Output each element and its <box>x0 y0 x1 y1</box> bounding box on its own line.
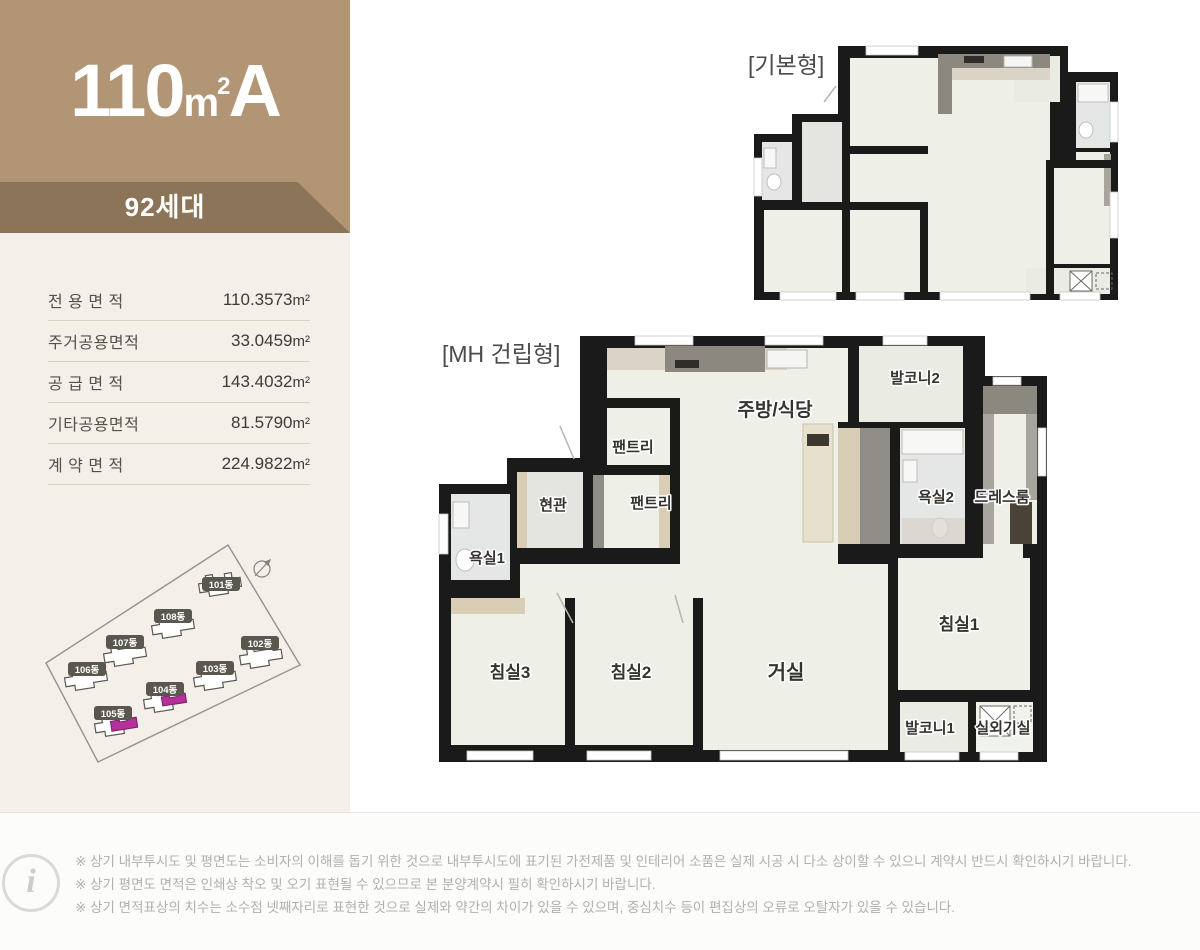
unit-type-letter: A <box>228 49 279 132</box>
disclaimer-notes: ※ 상기 내부투시도 및 평면도는 소비자의 이해를 돕기 위한 것으로 내부투… <box>75 850 1185 919</box>
room-dressroom: 드레스룸 <box>974 489 1029 506</box>
area-label: 주거공용면적 <box>48 329 139 353</box>
table-row: 공 급 면 적 143.4032m² <box>48 362 310 403</box>
table-row: 기타공용면적 81.5790m² <box>48 403 310 444</box>
svg-text:105동: 105동 <box>101 709 126 720</box>
area-value: 33.0459m² <box>231 331 310 351</box>
room-bath1: 욕실1 <box>469 550 505 567</box>
svg-text:108동: 108동 <box>161 612 186 623</box>
building-badge-106: 106동 <box>68 662 106 676</box>
room-balcony1: 발코니1 <box>905 720 955 737</box>
room-bedroom3: 침실3 <box>490 662 531 682</box>
area-label: 전 용 면 적 <box>48 288 124 312</box>
households-label: 92세대 <box>0 182 330 233</box>
room-living: 거실 <box>768 661 805 684</box>
room-bedroom2: 침실2 <box>611 662 652 682</box>
area-value: 110.3573m² <box>223 290 310 310</box>
svg-text:104동: 104동 <box>153 685 178 696</box>
svg-text:102동: 102동 <box>248 639 273 650</box>
unit-title: 110m2A <box>0 44 350 146</box>
svg-text:106동: 106동 <box>75 665 100 676</box>
disclaimer-line: ※ 상기 내부투시도 및 평면도는 소비자의 이해를 돕기 위한 것으로 내부투… <box>75 850 1185 873</box>
svg-text:103동: 103동 <box>203 664 228 675</box>
building-badge-102: 102동 <box>241 636 279 650</box>
building-badge-107: 107동 <box>106 635 144 649</box>
svg-text:101동: 101동 <box>209 580 234 591</box>
area-value: 143.4032m² <box>222 372 310 392</box>
building-badge-104: 104동 <box>146 682 184 696</box>
unit-unit: m <box>184 81 218 125</box>
room-balcony2: 발코니2 <box>890 370 940 387</box>
area-label: 계 약 면 적 <box>48 452 124 476</box>
unit-summary-sidebar: 110m2A 92세대 전 용 면 적 110.3573m² 주거공용면적 33… <box>0 0 350 812</box>
building-badge-101: 101동 <box>202 577 240 591</box>
room-bath2: 욕실2 <box>918 489 954 506</box>
info-icon: i <box>2 854 60 912</box>
area-label: 기타공용면적 <box>48 411 139 435</box>
room-bedroom1: 침실1 <box>939 614 980 634</box>
table-row: 주거공용면적 33.0459m² <box>48 321 310 362</box>
mh-floor-plan: 발코니2 주방/식당 팬트리 팬트리 현관 욕실1 욕실2 드레스룸 침실3 침… <box>435 332 1050 766</box>
area-value: 224.9822m² <box>222 454 310 474</box>
room-kitchen-dining: 주방/식당 <box>737 399 813 421</box>
unit-header: 110m2A 92세대 <box>0 0 350 233</box>
disclaimer-line: ※ 상기 평면도 면적은 인쇄상 착오 및 오기 표현될 수 있으므로 본 분양… <box>75 873 1185 896</box>
basic-floor-plan <box>750 42 1122 304</box>
area-value: 81.5790m² <box>231 413 310 433</box>
compass-north-icon <box>254 560 270 577</box>
room-pantry-lower: 팬트리 <box>630 495 671 512</box>
svg-text:107동: 107동 <box>113 638 138 649</box>
area-label: 공 급 면 적 <box>48 370 124 394</box>
building-badge-105: 105동 <box>94 706 132 720</box>
building-badge-108: 108동 <box>154 609 192 623</box>
building-badge-103: 103동 <box>196 661 234 675</box>
site-plan-map: 101동 108동 107동 106동 102동 103동 104동 105동 <box>35 532 325 782</box>
room-entrance: 현관 <box>539 497 567 514</box>
disclaimer-line: ※ 상기 면적표상의 치수는 소수점 넷째자리로 표현한 것으로 실제와 약간의… <box>75 896 1185 919</box>
room-outdoor-unit: 실외기실 <box>975 719 1030 737</box>
unit-unit-exp: 2 <box>217 73 228 100</box>
room-pantry-upper: 팬트리 <box>612 439 653 456</box>
table-row: 계 약 면 적 224.9822m² <box>48 444 310 485</box>
table-row: 전 용 면 적 110.3573m² <box>48 280 310 321</box>
unit-size: 110 <box>70 49 183 132</box>
area-table: 전 용 면 적 110.3573m² 주거공용면적 33.0459m² 공 급 … <box>48 280 310 485</box>
